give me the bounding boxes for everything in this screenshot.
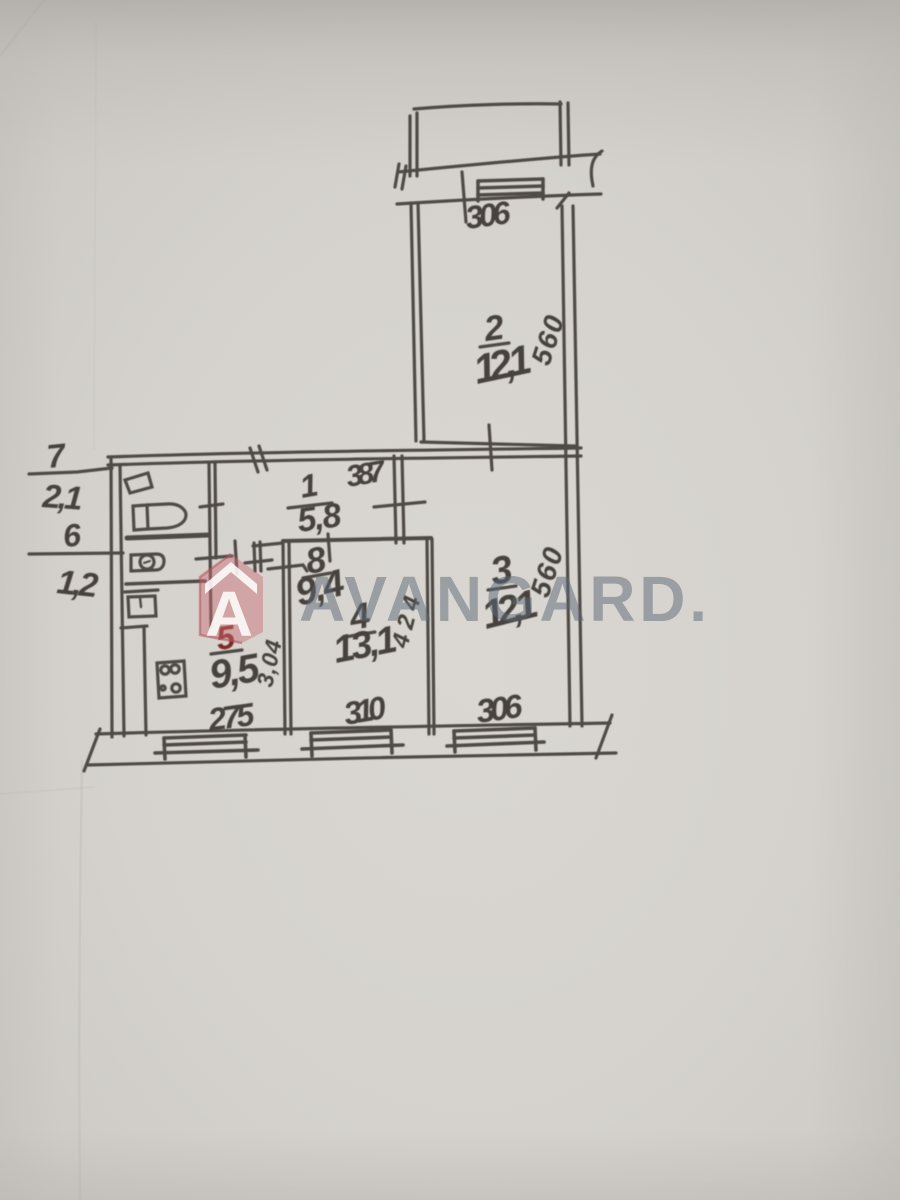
svg-text:5,8: 5,8 <box>295 496 344 540</box>
svg-text:6: 6 <box>61 517 82 554</box>
svg-text:387: 387 <box>343 454 388 493</box>
svg-text:310: 310 <box>341 689 389 732</box>
svg-text:275: 275 <box>205 696 258 738</box>
svg-text:A: A <box>205 578 253 650</box>
svg-text:AVANGARD.: AVANGARD. <box>299 563 707 635</box>
svg-text:2,1: 2,1 <box>41 477 84 517</box>
svg-text:1,2: 1,2 <box>55 563 100 605</box>
svg-text:306: 306 <box>474 687 525 730</box>
svg-text:306: 306 <box>463 194 513 236</box>
